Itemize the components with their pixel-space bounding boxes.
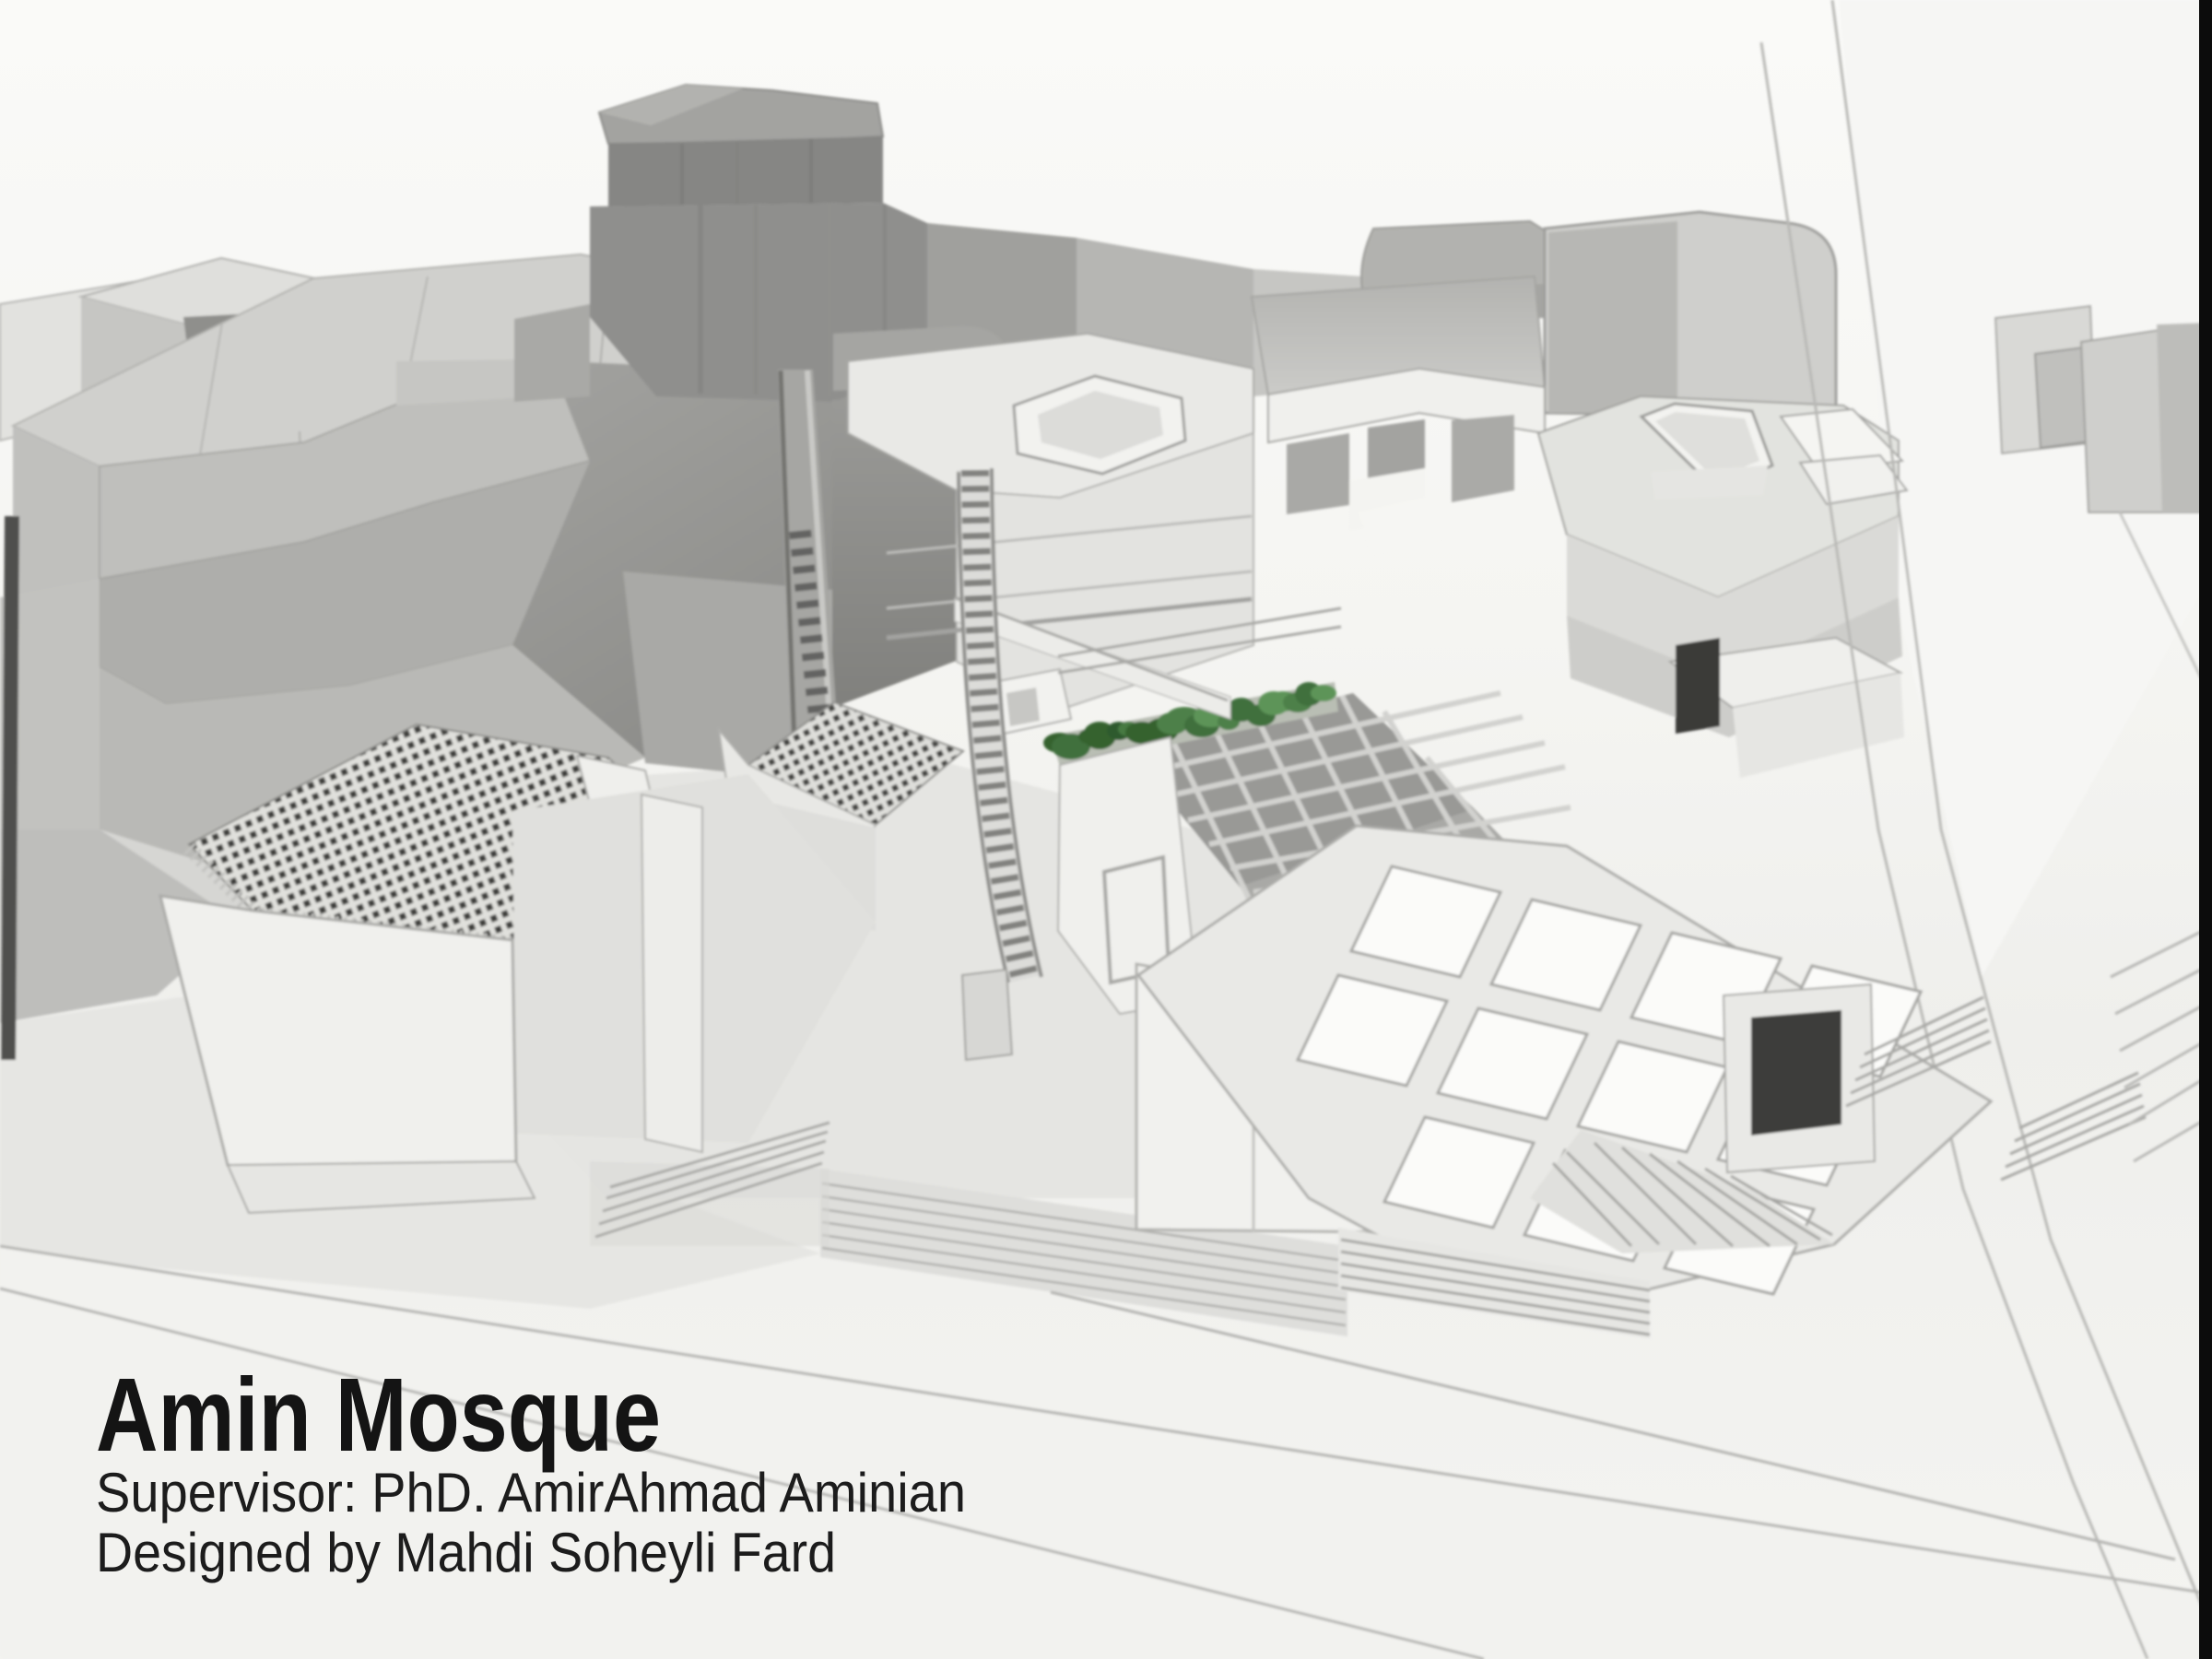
svg-text:Supervisor: PhD. AmirAhmad Ami: Supervisor: PhD. AmirAhmad Aminian bbox=[96, 1462, 966, 1524]
svg-text:Amin Mosque: Amin Mosque bbox=[96, 1357, 661, 1473]
svg-text:Designed by Mahdi Soheyli Fard: Designed by Mahdi Soheyli Fard bbox=[96, 1522, 836, 1583]
